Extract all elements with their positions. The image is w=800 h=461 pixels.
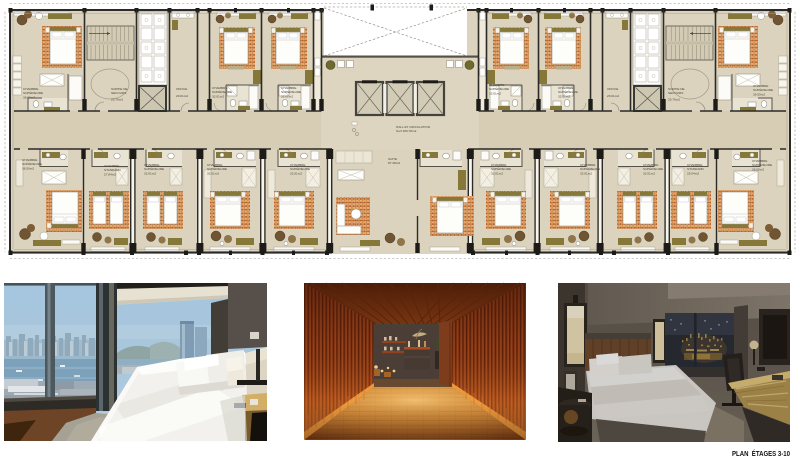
svg-text:25.04m2: 25.04m2 [687,171,699,175]
svg-text:32.01m2: 32.01m2 [207,171,219,175]
svg-text:36.50m2: 36.50m2 [753,92,765,96]
svg-text:32.01m2: 32.01m2 [489,91,501,95]
svg-text:32.01m2: 32.01m2 [643,171,655,175]
svg-text:36.50m2: 36.50m2 [23,95,35,99]
svg-text:PLAN ÉTAGES 3-10: PLAN ÉTAGES 3-10 [732,449,790,458]
svg-text:OFFICE: OFFICE [607,87,618,91]
svg-text:29.01m2: 29.01m2 [607,94,619,98]
svg-text:SECOURS: SECOURS [668,91,683,95]
svg-text:OFFICE: OFFICE [176,87,187,91]
svg-text:29.01m2: 29.01m2 [176,94,188,98]
svg-text:87.38m2: 87.38m2 [388,161,400,165]
svg-text:36.50m2: 36.50m2 [22,166,34,170]
svg-text:Surf 180.78m2: Surf 180.78m2 [396,129,417,133]
svg-text:25.76m2: 25.76m2 [111,98,123,102]
svg-text:32.01m2: 32.01m2 [290,171,302,175]
svg-text:32.01m2: 32.01m2 [558,94,570,98]
svg-text:32.01m2: 32.01m2 [212,94,224,98]
svg-text:32.01m2: 32.01m2 [144,171,156,175]
svg-text:32.01m2: 32.01m2 [491,171,503,175]
svg-text:32.01m2: 32.01m2 [281,94,293,98]
svg-text:25.76m2: 25.76m2 [668,98,680,102]
svg-text:SECOURS: SECOURS [111,91,126,95]
svg-text:27.84m2: 27.84m2 [104,172,116,176]
svg-text:36.50m2: 36.50m2 [752,167,764,171]
svg-text:32.01m2: 32.01m2 [580,171,592,175]
